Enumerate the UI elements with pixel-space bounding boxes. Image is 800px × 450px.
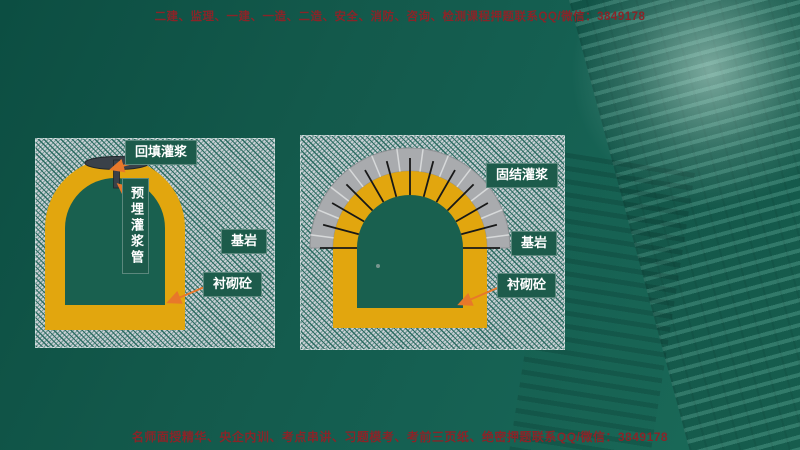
backfill-grouting-label: 回填灌浆 <box>125 140 197 165</box>
backfill-grouting-diagram: 回填灌浆 预埋灌浆管 基岩 衬砌砼 <box>35 138 275 348</box>
consolidation-grouting-diagram: 固结灌浆 基岩 衬砌砼 <box>300 135 565 350</box>
lining-label-right: 衬砌砼 <box>497 273 556 298</box>
grout-pipe-shape <box>114 160 120 188</box>
cursor-dot <box>376 264 380 268</box>
tunnel-interior-shape-right <box>357 195 463 308</box>
lining-label-left: 衬砌砼 <box>203 272 262 297</box>
bedrock-label-right: 基岩 <box>511 231 557 256</box>
bedrock-label-left: 基岩 <box>221 229 267 254</box>
top-banner-text: 二建、监理、一建、一造、二造、安全、消防、咨询、检测课程押题联系QQ/微信：38… <box>0 8 800 24</box>
consolidation-grouting-label: 固结灌浆 <box>486 163 558 188</box>
tunnel-interior-shape <box>65 178 165 305</box>
slide-canvas: 二建、监理、一建、一造、二造、安全、消防、咨询、检测课程押题联系QQ/微信：38… <box>0 0 800 450</box>
bottom-banner-text: 名师面授精华、央企内训、考点串讲、习题模考、考前三页纸、绝密押题联系QQ/微信：… <box>0 428 800 445</box>
embedded-pipe-label: 预埋灌浆管 <box>122 178 149 274</box>
